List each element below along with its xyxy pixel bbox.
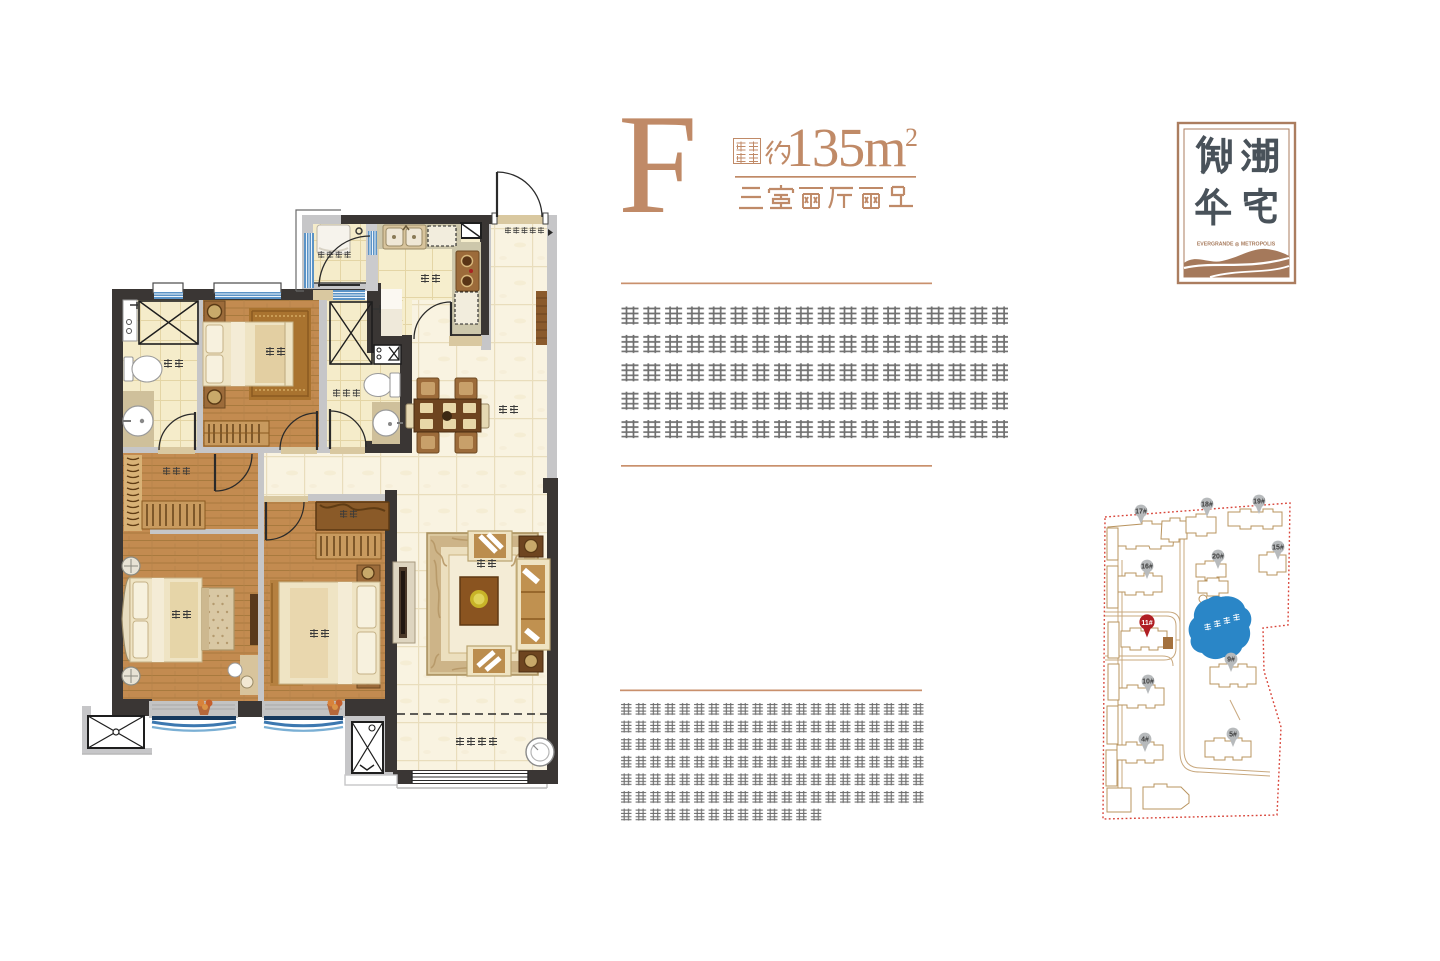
svg-text:EVERGRANDE ◎ METROPOLIS: EVERGRANDE ◎ METROPOLIS bbox=[1197, 242, 1276, 248]
svg-text:17#: 17# bbox=[1135, 509, 1147, 516]
svg-text:5#: 5# bbox=[1229, 732, 1237, 739]
svg-text:18#: 18# bbox=[1201, 502, 1213, 509]
svg-text:4#: 4# bbox=[1141, 737, 1149, 744]
svg-text:2: 2 bbox=[905, 123, 918, 152]
svg-text:9#: 9# bbox=[1227, 657, 1235, 664]
svg-text:F: F bbox=[618, 85, 698, 243]
svg-text:19#: 19# bbox=[1253, 499, 1265, 506]
svg-text:10#: 10# bbox=[1142, 679, 1154, 686]
svg-text:20#: 20# bbox=[1212, 554, 1224, 561]
svg-text:11#: 11# bbox=[1141, 620, 1152, 627]
svg-text:15#: 15# bbox=[1272, 545, 1284, 552]
svg-text:135m: 135m bbox=[786, 117, 906, 178]
svg-text:16#: 16# bbox=[1141, 564, 1153, 571]
